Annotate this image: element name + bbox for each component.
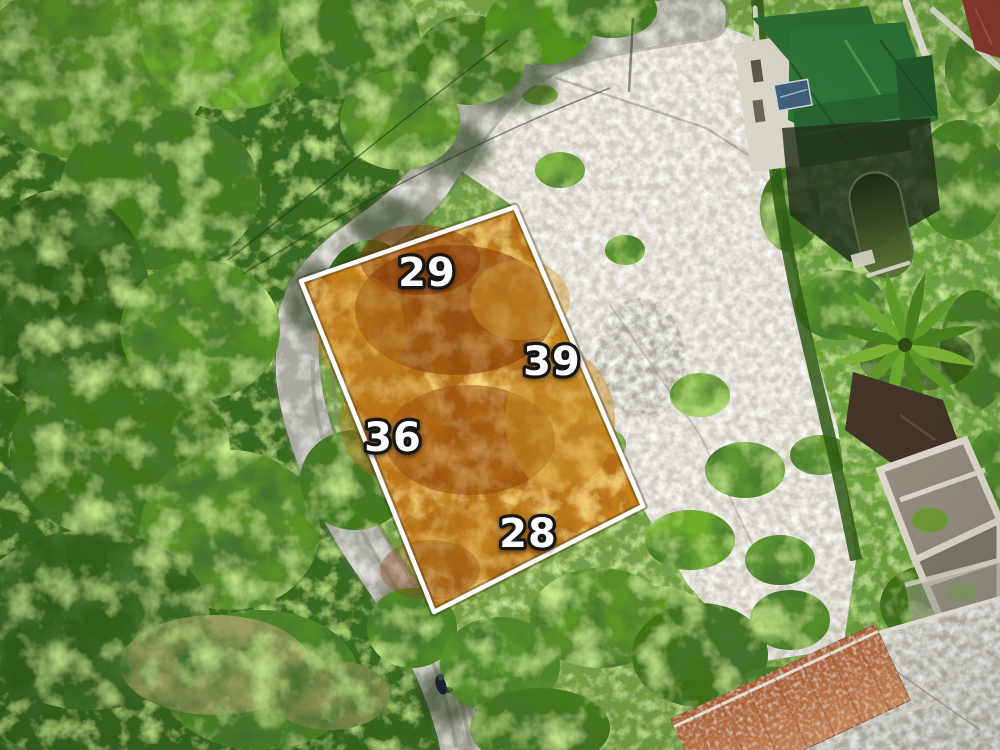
- aerial-photo: 29 39 36 28: [0, 0, 1000, 750]
- vignette: [0, 0, 1000, 750]
